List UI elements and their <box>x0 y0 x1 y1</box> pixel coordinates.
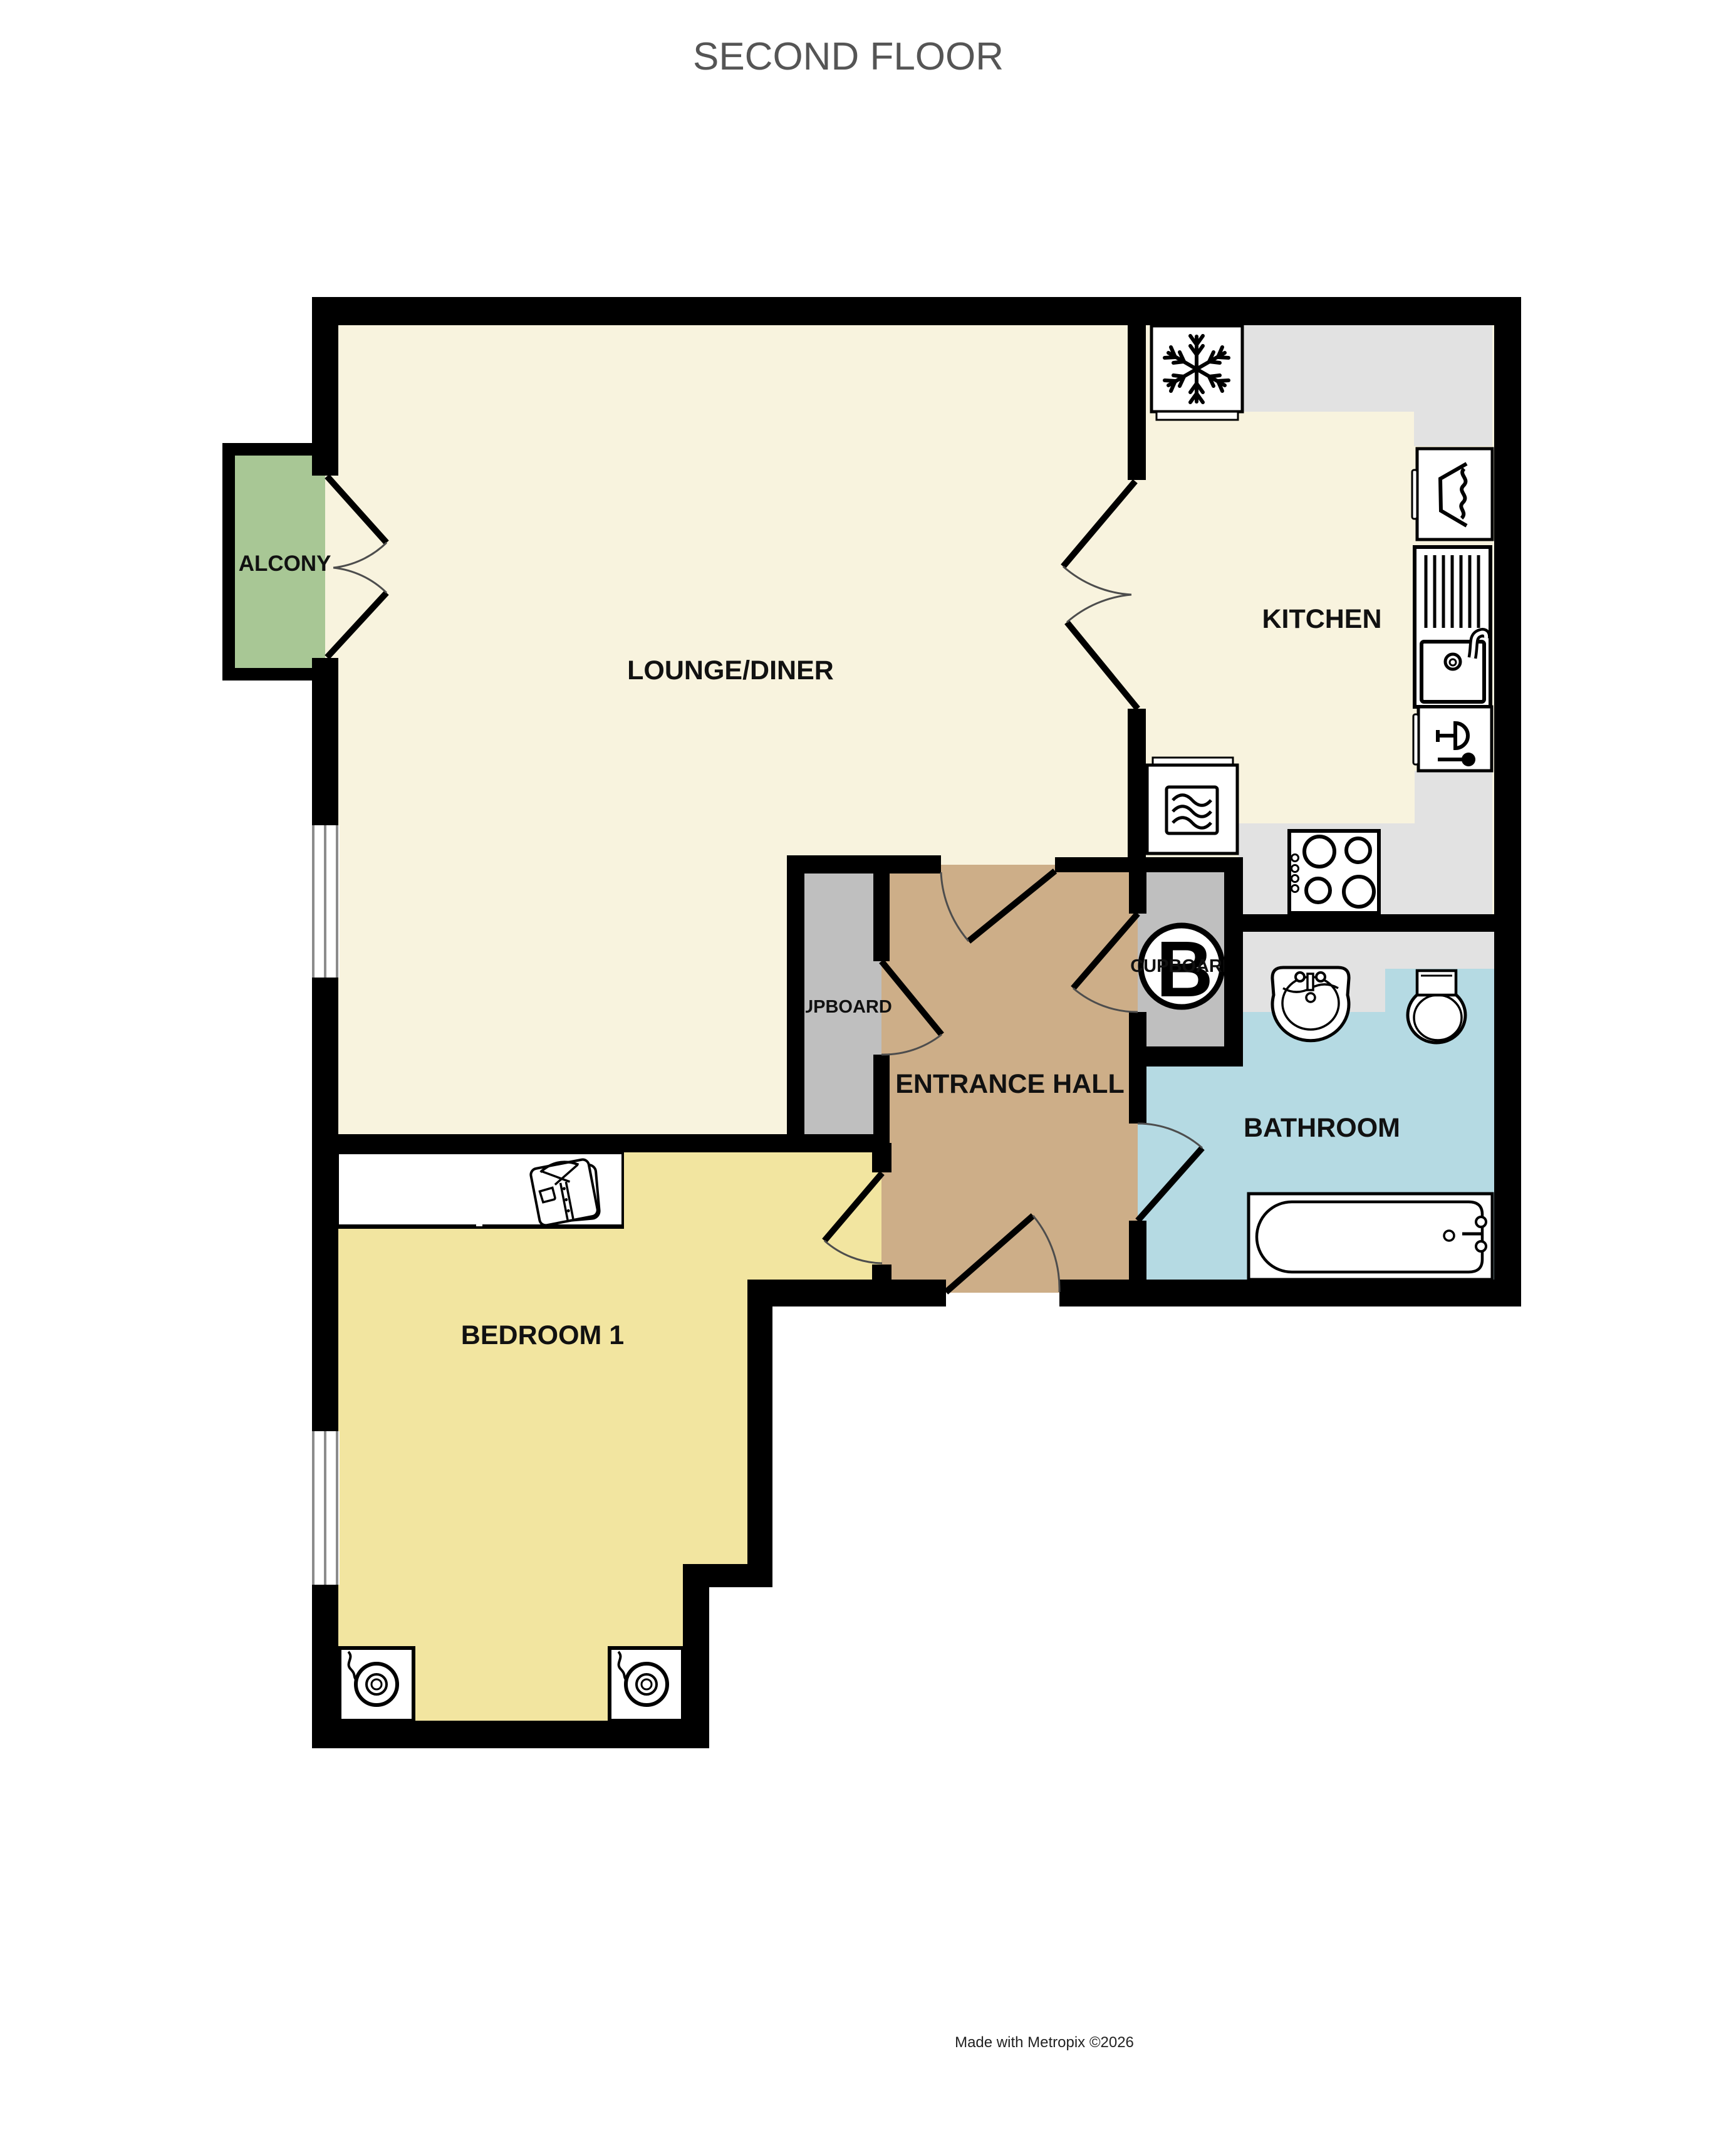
svg-text:BALCONY: BALCONY <box>222 551 331 576</box>
svg-text:CUPBOARD: CUPBOARD <box>1130 956 1235 976</box>
svg-text:Made with Metropix ©2026: Made with Metropix ©2026 <box>955 2034 1134 2051</box>
svg-text:LOUNGE/DINER: LOUNGE/DINER <box>627 655 834 686</box>
svg-text:BEDROOM 1: BEDROOM 1 <box>461 1320 624 1350</box>
svg-text:SECOND FLOOR: SECOND FLOOR <box>693 35 1004 78</box>
svg-text:KITCHEN: KITCHEN <box>1262 604 1381 634</box>
svg-text:ENTRANCE HALL: ENTRANCE HALL <box>895 1069 1124 1099</box>
svg-text:BATHROOM: BATHROOM <box>1244 1113 1400 1143</box>
